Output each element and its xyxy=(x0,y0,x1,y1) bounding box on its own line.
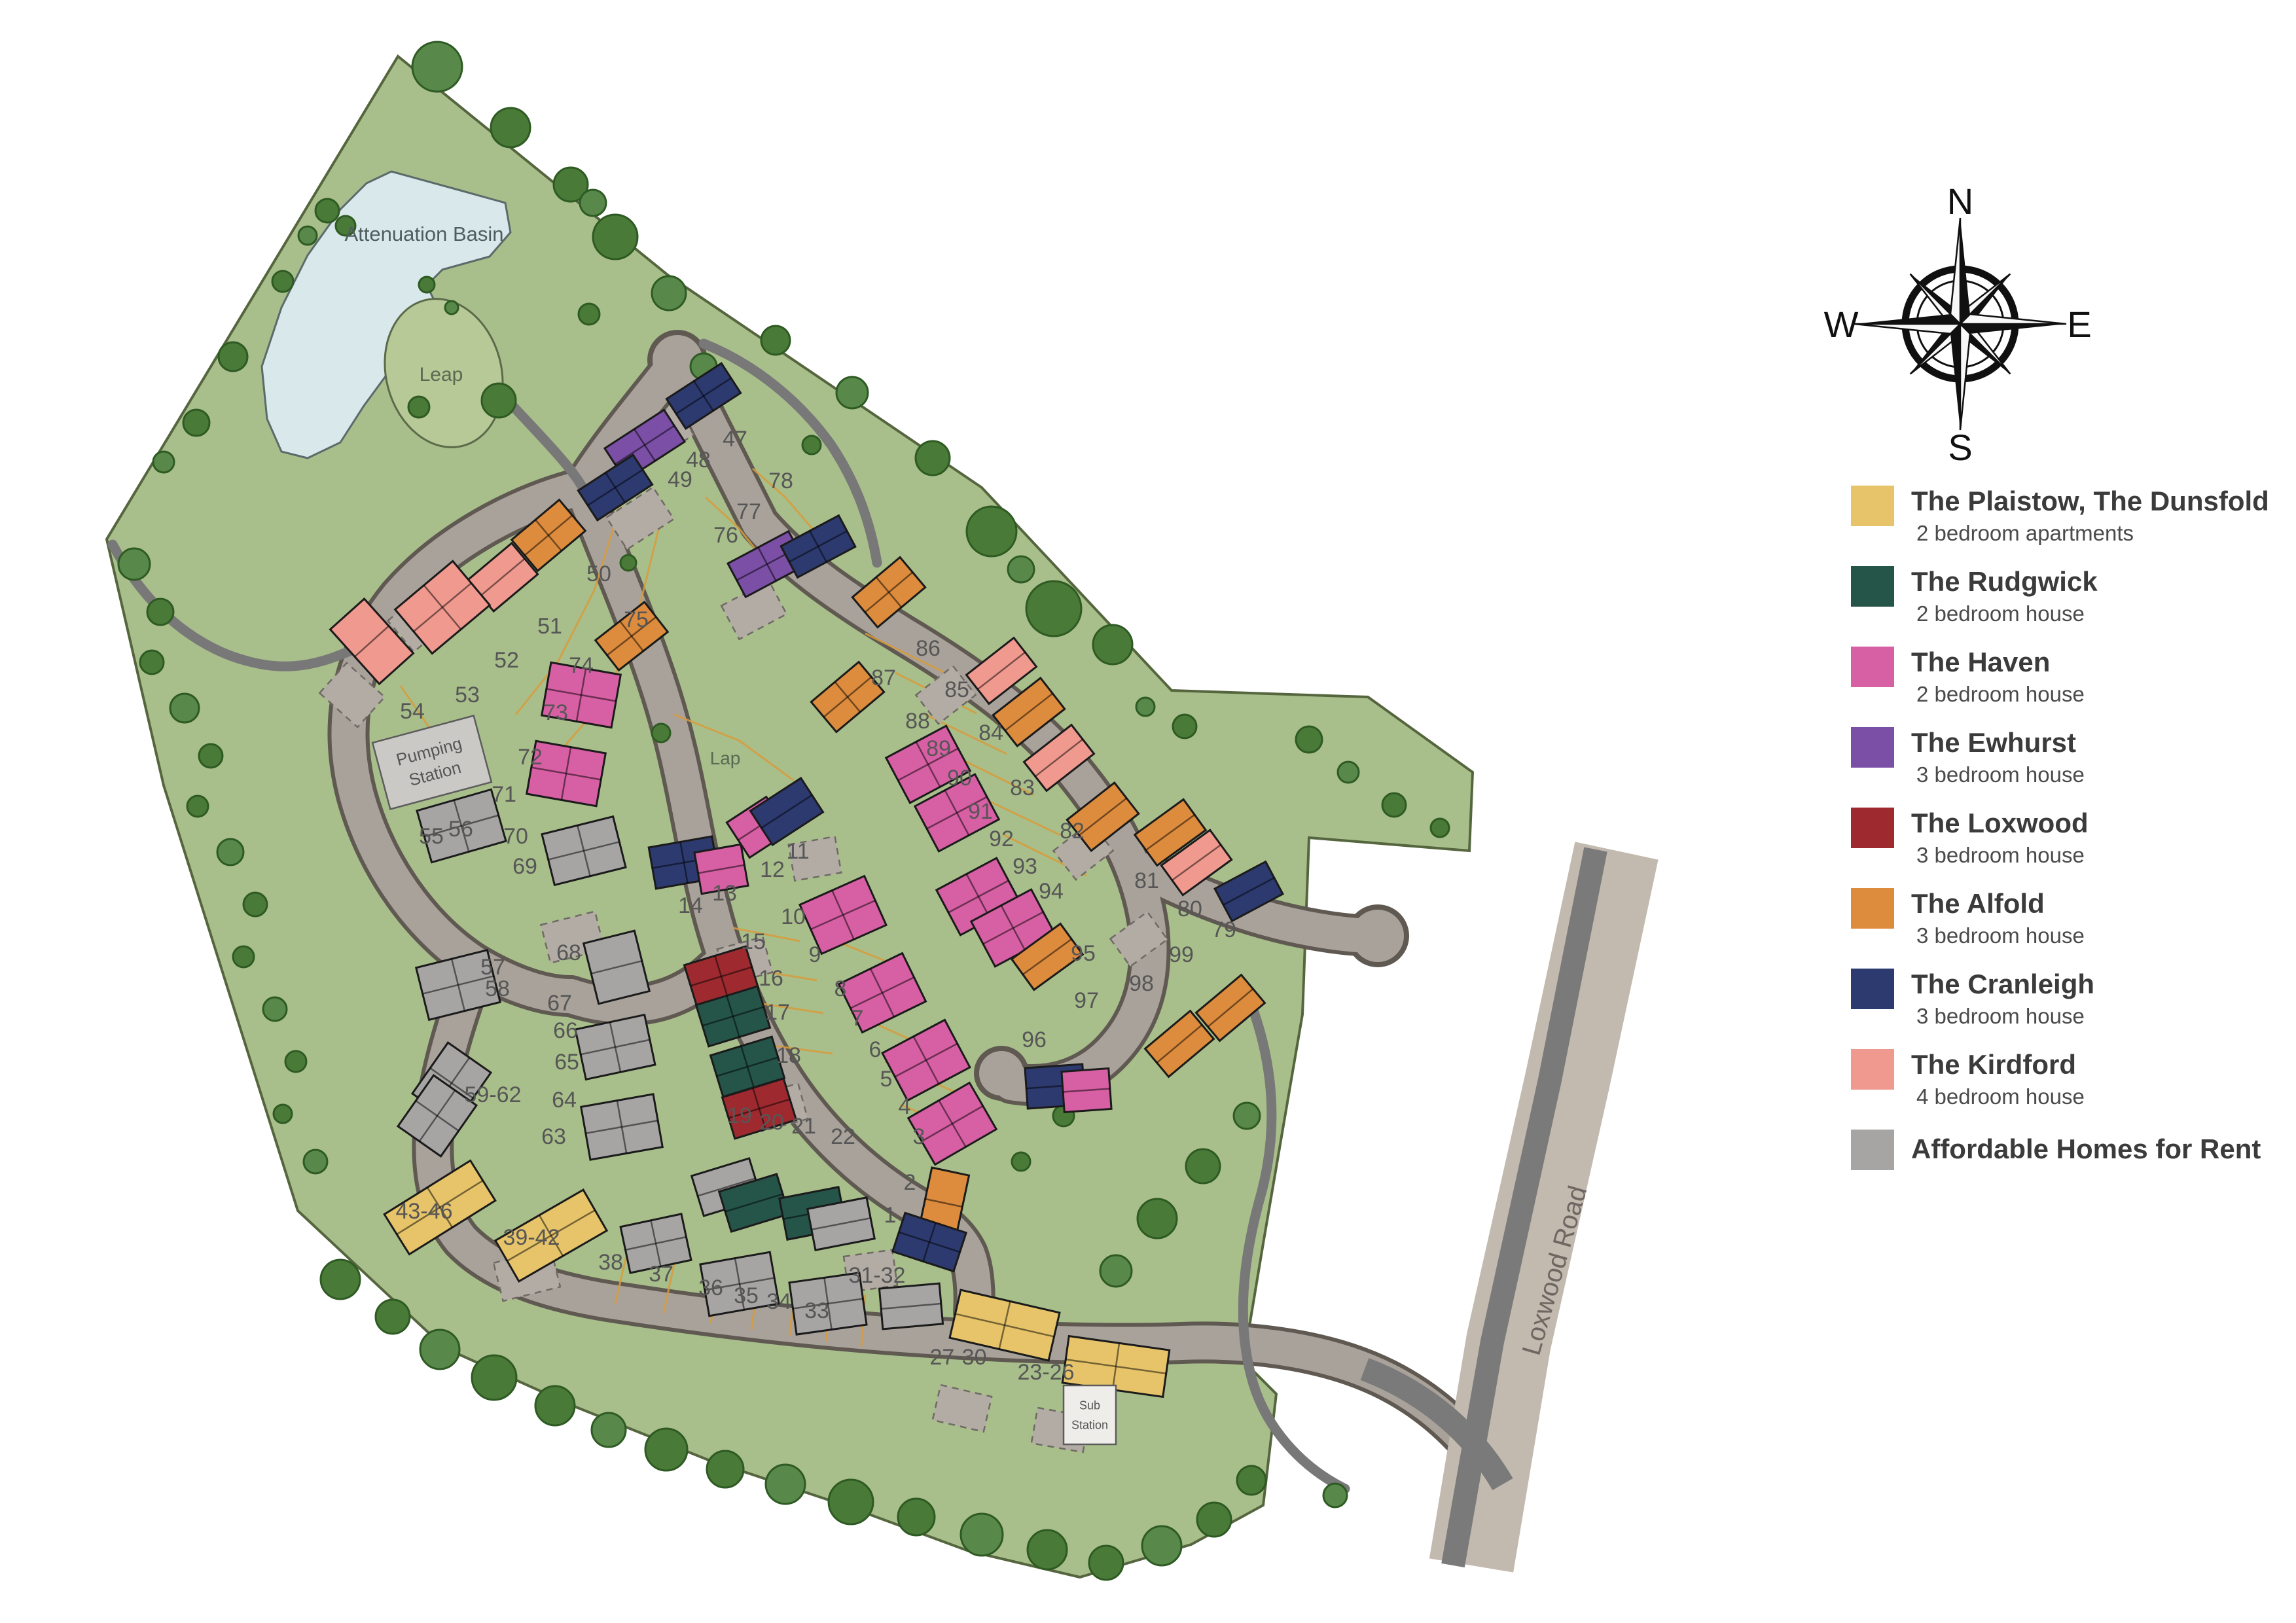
tree-icon xyxy=(1186,1149,1220,1183)
plot-label-97: 97 xyxy=(1074,988,1099,1013)
plot-label-53: 53 xyxy=(455,683,480,707)
tree-icon xyxy=(472,1355,516,1400)
plot-label-72: 72 xyxy=(518,745,543,770)
legend-item-name: The Ewhurst xyxy=(1911,727,2076,758)
legend-item-alfold: The Alfold3 bedroom house xyxy=(1851,888,2085,948)
plot-label-7: 7 xyxy=(852,1006,864,1031)
plot-label-86: 86 xyxy=(916,636,941,661)
legend-item-kirdford: The Kirdford4 bedroom house xyxy=(1851,1049,2085,1109)
compass-south-label: S xyxy=(1948,427,1972,468)
legend-item-name: Affordable Homes for Rent xyxy=(1911,1133,2261,1164)
tree-icon xyxy=(579,304,600,325)
plot-label-92: 92 xyxy=(989,827,1014,851)
tree-icon xyxy=(304,1150,327,1173)
plot-label-88: 88 xyxy=(905,709,930,734)
plot-label-10: 10 xyxy=(781,904,806,929)
tree-icon xyxy=(1093,625,1132,664)
legend-swatch-haven xyxy=(1851,647,1894,687)
plot-label-4: 4 xyxy=(899,1094,911,1119)
utility-box-label: Sub xyxy=(1079,1399,1100,1412)
plot-label-98: 98 xyxy=(1129,971,1154,996)
plot-label-19: 19 xyxy=(727,1103,752,1128)
plot-label-78: 78 xyxy=(768,469,793,493)
utility-box: SubStation xyxy=(1064,1385,1116,1444)
legend-item-desc: 3 bedroom house xyxy=(1916,843,2085,867)
legend-swatch-rent xyxy=(1851,1130,1894,1170)
tree-icon xyxy=(170,694,199,722)
compass-north-label: N xyxy=(1947,181,1973,222)
legend-item-name: The Cranleigh xyxy=(1911,969,2094,999)
tree-icon xyxy=(1142,1526,1181,1565)
legend-item-name: The Rudgwick xyxy=(1911,566,2098,597)
plot-label-15: 15 xyxy=(741,929,766,954)
tree-icon xyxy=(1234,1103,1260,1129)
legend-swatch-rudgwick xyxy=(1851,566,1894,607)
plot-label-68: 68 xyxy=(556,940,581,965)
plot-label-20: 20 xyxy=(759,1110,784,1135)
plot-label-12: 12 xyxy=(760,857,785,882)
house-haven xyxy=(1062,1069,1111,1113)
tree-icon xyxy=(652,724,670,742)
tree-icon xyxy=(593,215,637,259)
tree-icon xyxy=(1012,1152,1030,1171)
plot-label-34: 34 xyxy=(766,1289,791,1314)
tree-icon xyxy=(652,276,686,310)
plot-label-54: 54 xyxy=(400,699,425,724)
legend-swatch-alfold xyxy=(1851,888,1894,929)
tree-icon xyxy=(1138,1199,1177,1238)
tree-icon xyxy=(1028,1530,1067,1569)
legend-item-rent: Affordable Homes for Rent xyxy=(1851,1130,2261,1170)
plot-label-2: 2 xyxy=(904,1170,916,1195)
plot-label-71: 71 xyxy=(492,782,516,807)
tree-icon xyxy=(217,839,243,865)
tree-icon xyxy=(967,507,1016,556)
plot-label-83: 83 xyxy=(1010,776,1035,800)
tree-icon xyxy=(1237,1466,1266,1495)
plot-label-70: 70 xyxy=(503,824,528,849)
legend-item-rudgwick: The Rudgwick2 bedroom house xyxy=(1851,566,2098,626)
tree-icon xyxy=(761,326,790,355)
plot-label-79: 79 xyxy=(1211,918,1236,942)
plot-label-73: 73 xyxy=(543,700,568,725)
plot-label-21: 21 xyxy=(791,1114,816,1139)
plot-label-52: 52 xyxy=(494,648,519,673)
plot-label-82: 82 xyxy=(1060,819,1085,844)
plot-label-1: 1 xyxy=(884,1203,897,1228)
tree-icon xyxy=(829,1480,873,1524)
plot-label-14: 14 xyxy=(678,893,703,918)
tree-icon xyxy=(898,1499,935,1535)
site-plan-page: 1234567891011121314151617181920212223-26… xyxy=(0,0,2296,1623)
house-rent xyxy=(879,1283,942,1329)
legend-item-desc: 3 bedroom house xyxy=(1916,762,2085,787)
tree-icon xyxy=(766,1465,805,1504)
tree-icon xyxy=(140,651,164,674)
tree-icon xyxy=(187,796,208,817)
plot-label-84: 84 xyxy=(978,721,1003,745)
tree-icon xyxy=(645,1429,687,1471)
plot-label-22: 22 xyxy=(831,1124,855,1149)
tree-icon xyxy=(298,226,317,245)
legend: The Plaistow, The Dunsfold2 bedroom apar… xyxy=(1851,486,2269,1170)
tree-icon xyxy=(1323,1484,1347,1507)
legend-item-plaistow: The Plaistow, The Dunsfold2 bedroom apar… xyxy=(1851,486,2269,545)
legend-item-name: The Loxwood xyxy=(1911,808,2089,838)
tree-icon xyxy=(315,199,339,223)
map-label: Lap xyxy=(710,748,741,768)
tree-icon xyxy=(183,410,209,436)
map-label: Attenuation Basin xyxy=(344,223,503,245)
legend-swatch-loxwood xyxy=(1851,808,1894,848)
legend-item-desc: 3 bedroom house xyxy=(1916,923,2085,948)
tree-icon xyxy=(285,1051,306,1072)
legend-item-loxwood: The Loxwood3 bedroom house xyxy=(1851,808,2089,867)
tree-icon xyxy=(233,946,254,967)
tree-icon xyxy=(420,1330,459,1369)
tree-icon xyxy=(491,108,530,147)
tree-icon xyxy=(1089,1546,1123,1580)
tree-icon xyxy=(1296,726,1322,753)
plot-label-69: 69 xyxy=(512,854,537,879)
tree-icon xyxy=(1197,1503,1231,1537)
tree-icon xyxy=(1026,581,1081,636)
plot-label-59-62: 59-62 xyxy=(465,1082,522,1107)
plot-label-90: 90 xyxy=(947,766,972,791)
plot-label-80: 80 xyxy=(1177,897,1202,921)
legend-item-desc: 3 bedroom house xyxy=(1916,1004,2085,1028)
legend-item-name: The Alfold xyxy=(1911,888,2045,919)
plot-label-43-46: 43-46 xyxy=(396,1199,453,1224)
tree-icon xyxy=(1173,715,1196,738)
legend-item-name: The Haven xyxy=(1911,647,2050,677)
plot-label-38: 38 xyxy=(598,1250,623,1275)
plot-label-85: 85 xyxy=(944,677,969,702)
compass-rose: N S E W xyxy=(1824,181,2092,468)
tree-icon xyxy=(272,271,293,292)
tree-icon xyxy=(916,441,950,475)
tree-icon xyxy=(199,744,223,768)
legend-swatch-ewhurst xyxy=(1851,727,1894,768)
plot-label-49: 49 xyxy=(668,467,692,492)
plot-label-76: 76 xyxy=(713,523,738,548)
legend-item-desc: 2 bedroom house xyxy=(1916,682,2085,706)
plot-label-50: 50 xyxy=(586,562,611,586)
tree-icon xyxy=(961,1514,1003,1556)
tree-icon xyxy=(802,436,821,454)
tree-icon xyxy=(321,1260,360,1299)
plot-label-89: 89 xyxy=(926,736,951,761)
compass-east-label: E xyxy=(2067,304,2091,345)
plot-label-81: 81 xyxy=(1134,868,1159,893)
plot-label-5: 5 xyxy=(880,1067,893,1092)
plot-label-47: 47 xyxy=(723,427,747,452)
tree-icon xyxy=(118,548,150,580)
tree-icon xyxy=(445,301,458,314)
legend-item-desc: 2 bedroom house xyxy=(1916,601,2085,626)
utility-box-label: Station xyxy=(1071,1418,1108,1431)
legend-item-name: The Plaistow, The Dunsfold xyxy=(1911,486,2269,516)
plot-label-18: 18 xyxy=(776,1043,801,1068)
legend-item-desc: 2 bedroom apartments xyxy=(1916,521,2134,545)
plot-label-39-42: 39-42 xyxy=(503,1225,560,1250)
legend-item-ewhurst: The Ewhurst3 bedroom house xyxy=(1851,727,2085,787)
plot-label-58: 58 xyxy=(485,976,510,1001)
tree-icon xyxy=(147,599,173,625)
plot-label-8: 8 xyxy=(834,976,847,1001)
plot-label-33: 33 xyxy=(804,1298,829,1323)
plot-label-23-26: 23-26 xyxy=(1018,1360,1075,1385)
tree-icon xyxy=(1100,1255,1132,1287)
plot-label-95: 95 xyxy=(1071,941,1096,966)
legend-item-name: The Kirdford xyxy=(1911,1049,2076,1080)
plot-label-99: 99 xyxy=(1169,942,1194,967)
plot-label-35: 35 xyxy=(734,1283,759,1308)
legend-swatch-cranleigh xyxy=(1851,969,1894,1009)
plot-label-16: 16 xyxy=(759,966,783,991)
tree-icon xyxy=(1338,762,1359,783)
tree-icon xyxy=(482,383,516,418)
tree-icon xyxy=(1008,556,1034,582)
plot-label-75: 75 xyxy=(624,607,649,632)
plot-label-87: 87 xyxy=(871,666,896,690)
tree-icon xyxy=(1431,819,1449,837)
tree-icon xyxy=(274,1105,292,1123)
plot-label-17: 17 xyxy=(765,1000,790,1025)
plot-label-96: 96 xyxy=(1022,1027,1047,1052)
plot-label-9: 9 xyxy=(809,942,821,967)
plot-label-36: 36 xyxy=(698,1275,723,1300)
plot-label-77: 77 xyxy=(736,499,761,524)
plot-label-63: 63 xyxy=(541,1124,566,1149)
legend-swatch-plaistow xyxy=(1851,486,1894,526)
tree-icon xyxy=(836,377,868,408)
map-label: Leap xyxy=(420,364,463,385)
legend-item-cranleigh: The Cranleigh3 bedroom house xyxy=(1851,969,2094,1028)
tree-icon xyxy=(1136,698,1155,716)
plot-label-55: 55 xyxy=(419,824,444,849)
site-plan-canvas: 1234567891011121314151617181920212223-26… xyxy=(0,0,2296,1623)
legend-item-haven: The Haven2 bedroom house xyxy=(1851,647,2085,706)
plot-label-64: 64 xyxy=(552,1088,577,1113)
tree-icon xyxy=(419,277,435,293)
plot-label-94: 94 xyxy=(1039,879,1064,904)
legend-swatch-kirdford xyxy=(1851,1049,1894,1090)
plot-label-31-32: 31-32 xyxy=(849,1263,906,1288)
tree-icon xyxy=(535,1386,575,1425)
plot-label-93: 93 xyxy=(1013,854,1037,879)
plot-label-91: 91 xyxy=(968,799,993,824)
tree-icon xyxy=(412,42,462,92)
tree-icon xyxy=(243,893,267,916)
plot-label-3: 3 xyxy=(913,1124,925,1149)
plot-label-66: 66 xyxy=(553,1018,578,1043)
tree-icon xyxy=(408,397,429,418)
tree-icon xyxy=(707,1451,744,1488)
tree-icon xyxy=(263,997,287,1021)
tree-icon xyxy=(580,190,606,216)
tree-icon xyxy=(219,342,247,371)
plot-label-65: 65 xyxy=(554,1050,579,1075)
plot-label-27-30: 27-30 xyxy=(930,1345,987,1370)
plot-label-51: 51 xyxy=(537,614,562,639)
plot-label-11: 11 xyxy=(786,839,809,864)
plot-label-74: 74 xyxy=(569,653,594,678)
plot-label-37: 37 xyxy=(649,1262,673,1287)
plot-label-13: 13 xyxy=(712,881,737,906)
tree-icon xyxy=(620,555,636,571)
tree-icon xyxy=(153,452,174,473)
plot-label-6: 6 xyxy=(869,1037,882,1062)
plot-label-56: 56 xyxy=(448,817,473,842)
tree-icon xyxy=(592,1413,626,1447)
tree-icon xyxy=(1382,793,1406,817)
compass-west-label: W xyxy=(1824,304,1859,345)
tree-icon xyxy=(376,1300,410,1334)
legend-item-desc: 4 bedroom house xyxy=(1916,1084,2085,1109)
house-rent xyxy=(581,1094,663,1160)
plot-label-67: 67 xyxy=(547,991,572,1016)
